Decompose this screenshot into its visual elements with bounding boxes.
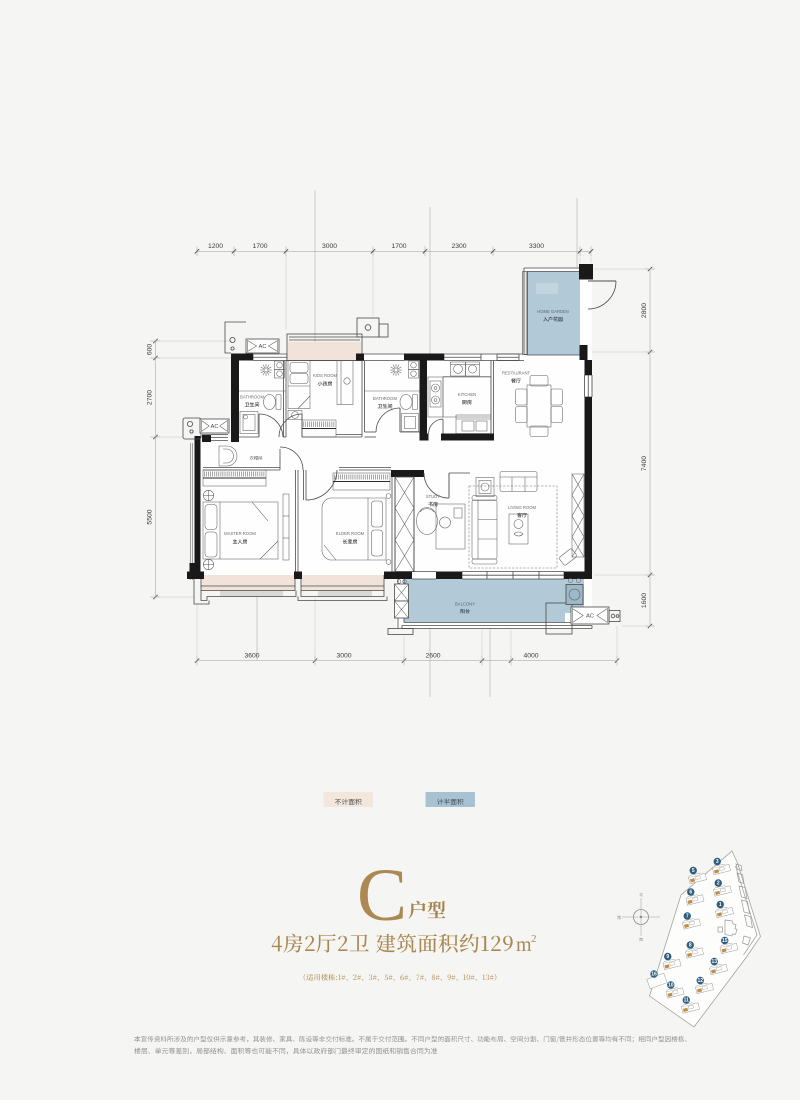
svg-text:m: m (516, 934, 532, 956)
svg-text:2700: 2700 (147, 390, 154, 405)
svg-text:2800: 2800 (641, 303, 648, 318)
svg-text:STUDY: STUDY (426, 494, 440, 499)
svg-text:15: 15 (722, 938, 728, 944)
svg-text:16: 16 (651, 972, 657, 978)
svg-text:AC: AC (586, 614, 594, 620)
svg-text:1600: 1600 (641, 593, 648, 608)
svg-text:600: 600 (147, 344, 154, 356)
svg-text:1: 1 (719, 902, 722, 908)
svg-text:13: 13 (711, 959, 717, 965)
svg-text:RESTAURANT: RESTAURANT (502, 371, 531, 376)
svg-text:3300: 3300 (529, 243, 544, 250)
svg-text:12: 12 (697, 978, 703, 984)
svg-text:9: 9 (666, 954, 669, 960)
svg-text:3000: 3000 (322, 243, 337, 250)
svg-text:BATHROOM: BATHROOM (240, 395, 264, 400)
svg-text:1200: 1200 (208, 243, 223, 250)
svg-text:2600: 2600 (425, 653, 440, 660)
svg-text:HOME GARDEN: HOME GARDEN (537, 309, 569, 314)
svg-text:2: 2 (717, 881, 720, 887)
svg-text:7400: 7400 (641, 456, 648, 471)
svg-text:2: 2 (531, 933, 537, 945)
svg-text:MASTER ROOM: MASTER ROOM (224, 531, 256, 536)
svg-text:AC: AC (259, 344, 267, 350)
svg-text:6: 6 (689, 890, 692, 896)
svg-text:3600: 3600 (244, 653, 259, 660)
svg-text:AC: AC (211, 424, 219, 430)
svg-text:5500: 5500 (147, 509, 154, 524)
svg-text:1700: 1700 (252, 243, 267, 250)
svg-text:2300: 2300 (451, 243, 466, 250)
svg-text:10: 10 (668, 983, 674, 989)
svg-text:ELDER ROOM: ELDER ROOM (336, 531, 365, 536)
svg-text:3: 3 (716, 859, 719, 865)
svg-text:3000: 3000 (336, 653, 351, 660)
svg-text:KITCHEN: KITCHEN (458, 392, 476, 397)
svg-text:7: 7 (686, 914, 689, 920)
svg-text:KIDS ROOM: KIDS ROOM (313, 373, 337, 378)
svg-text:C: C (357, 854, 407, 937)
svg-text:BATHROOM: BATHROOM (373, 396, 397, 401)
svg-text:4000: 4000 (523, 653, 538, 660)
svg-text:5: 5 (692, 868, 695, 874)
svg-text:LIVING ROOM: LIVING ROOM (508, 505, 536, 510)
svg-text:BALCONY: BALCONY (455, 602, 475, 607)
svg-text:1700: 1700 (391, 243, 406, 250)
svg-text:8: 8 (689, 943, 692, 949)
svg-text:11: 11 (684, 998, 690, 1004)
